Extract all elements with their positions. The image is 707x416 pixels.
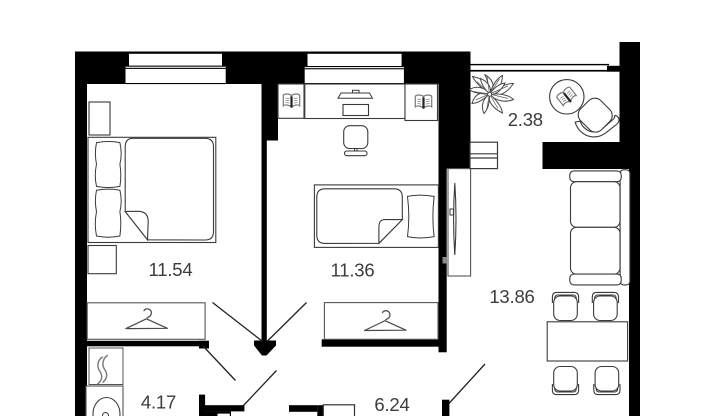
svg-text:11.54: 11.54 bbox=[149, 259, 193, 280]
svg-text:2.38: 2.38 bbox=[508, 109, 543, 130]
svg-text:6.24: 6.24 bbox=[374, 394, 409, 415]
svg-text:11.36: 11.36 bbox=[331, 259, 375, 280]
svg-text:13.86: 13.86 bbox=[489, 286, 534, 307]
svg-text:4.17: 4.17 bbox=[141, 392, 176, 413]
